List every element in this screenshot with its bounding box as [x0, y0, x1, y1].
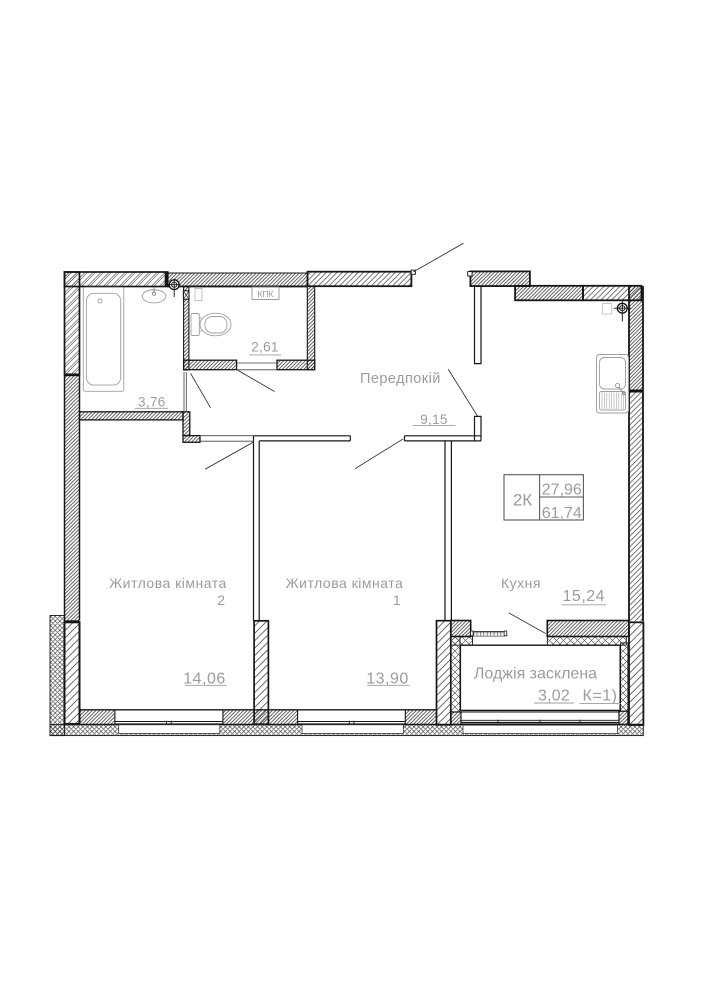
svg-text:Житлова кімната: Житлова кімната: [286, 575, 404, 591]
svg-text:2К: 2К: [513, 491, 532, 510]
svg-text:15,24: 15,24: [563, 588, 606, 605]
svg-text:61,74: 61,74: [542, 505, 582, 522]
svg-text:Кухня: Кухня: [501, 575, 541, 591]
svg-text:3,02: 3,02: [538, 688, 570, 705]
svg-text:Житлова кімната: Житлова кімната: [109, 575, 227, 591]
svg-text:К=1): К=1): [583, 688, 618, 705]
svg-text:27,96: 27,96: [542, 482, 582, 499]
svg-text:2: 2: [217, 592, 225, 608]
svg-text:Передпокій: Передпокій: [360, 371, 441, 387]
svg-text:2,61: 2,61: [251, 340, 278, 355]
svg-text:КПК: КПК: [257, 289, 273, 299]
svg-text:9,15: 9,15: [420, 412, 447, 427]
svg-text:Лоджія засклена: Лоджія засклена: [474, 666, 597, 683]
svg-text:3,76: 3,76: [138, 394, 165, 409]
svg-text:1: 1: [393, 592, 401, 608]
